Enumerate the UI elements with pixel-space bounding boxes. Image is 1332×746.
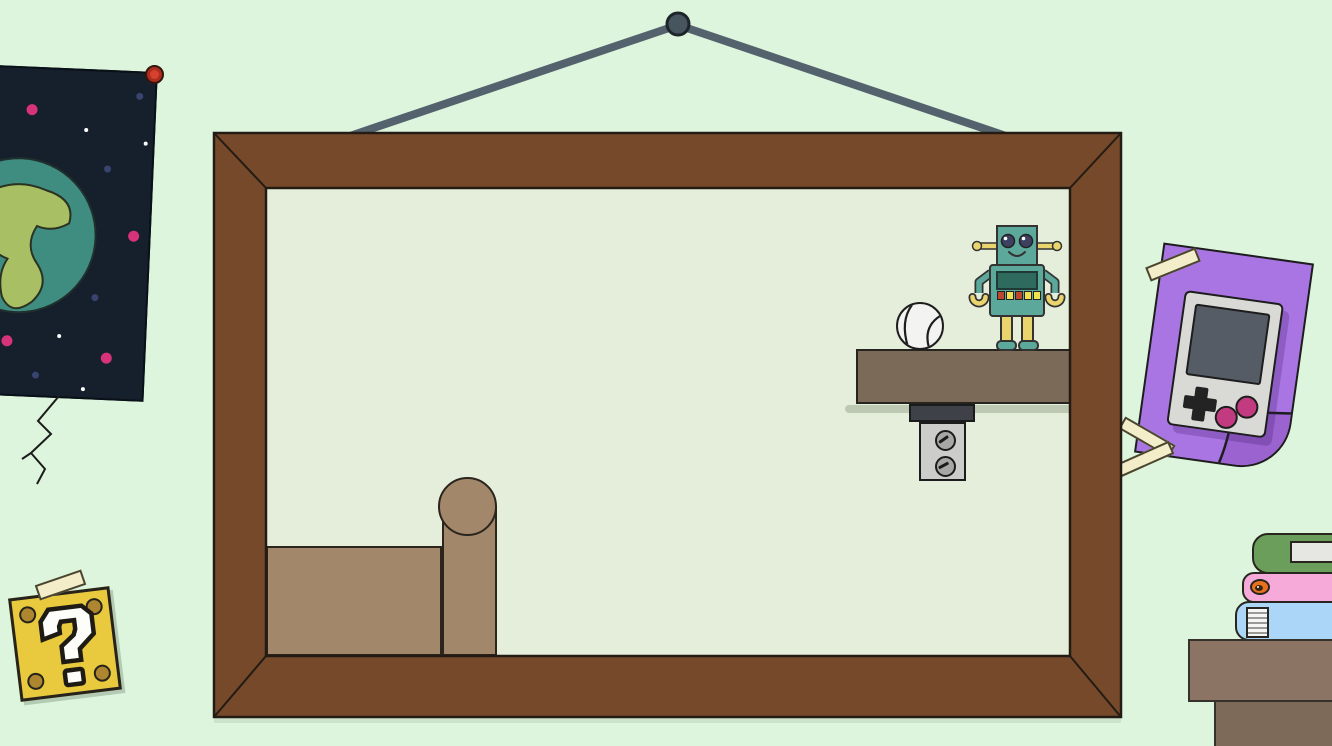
baseball-seams — [898, 304, 942, 348]
blue-book[interactable] — [1235, 601, 1332, 641]
screw-slot — [938, 435, 948, 443]
robot-panel-button — [1024, 291, 1032, 300]
robot-panel-button — [1006, 291, 1014, 300]
white-star — [57, 334, 61, 338]
screw-slot — [938, 461, 949, 468]
robot-leg-left — [1001, 316, 1012, 343]
platform-block[interactable] — [266, 546, 442, 656]
frame-shadow — [214, 718, 1121, 723]
pink-star — [26, 104, 37, 115]
blue-star — [136, 93, 143, 100]
screw-icon — [935, 430, 956, 451]
gameboy-screen — [1185, 303, 1270, 385]
robot-panel-button — [1015, 291, 1023, 300]
gameboy-device — [1166, 290, 1284, 439]
question-block[interactable] — [8, 586, 122, 702]
antenna-tip — [1053, 242, 1062, 251]
pink-star — [1, 335, 12, 346]
platform-post-cap[interactable] — [438, 477, 497, 536]
pink-star — [128, 230, 139, 241]
dpad-icon — [1183, 395, 1217, 412]
green-book[interactable] — [1252, 533, 1332, 574]
pink-book[interactable] — [1242, 572, 1332, 603]
sticker-eye-glint — [1257, 586, 1260, 589]
robot-panel-button — [997, 291, 1005, 300]
shelf-bracket-plate — [919, 422, 966, 481]
screw-icon — [935, 456, 956, 477]
robot-leg-right — [1022, 316, 1033, 343]
blue-star — [91, 294, 98, 301]
white-star — [81, 387, 85, 391]
wall-crack — [22, 396, 59, 484]
poster-pin — [145, 65, 164, 84]
wall-shelf — [856, 349, 1071, 404]
robot-foot-left — [997, 341, 1016, 350]
space-poster[interactable] — [0, 64, 158, 402]
white-star — [144, 142, 148, 146]
star-field — [0, 66, 156, 400]
robot-eye-right — [1020, 235, 1033, 248]
robot[interactable] — [964, 221, 1070, 353]
robot-antenna-right — [1036, 243, 1054, 249]
nail — [667, 13, 689, 35]
robot-button-row — [997, 291, 1041, 300]
blue-star — [32, 371, 39, 378]
white-star — [84, 128, 88, 132]
pink-star — [101, 352, 112, 363]
desk-base — [1214, 702, 1332, 746]
eye-glint — [1004, 237, 1008, 241]
robot-foot-right — [1019, 341, 1038, 350]
desk-top — [1188, 639, 1332, 702]
blue-star — [104, 165, 111, 172]
sticker-eye — [1255, 585, 1263, 591]
book-label — [1290, 541, 1332, 563]
shelf-bracket-cap — [909, 404, 975, 422]
robot-eye-left — [1002, 235, 1015, 248]
robot-antenna-left — [980, 243, 998, 249]
frame-interior-background — [0, 0, 1332, 746]
robot-panel-button — [1033, 291, 1041, 300]
book-sticker — [1250, 579, 1270, 595]
baseball[interactable] — [896, 302, 944, 350]
book-striped-label — [1246, 607, 1269, 638]
scene — [0, 0, 1332, 746]
robot-screen — [997, 272, 1037, 289]
antenna-tip — [973, 242, 982, 251]
hanging-wire — [347, 25, 1009, 137]
eye-glint — [1022, 237, 1026, 241]
question-mark-icon — [25, 594, 112, 697]
